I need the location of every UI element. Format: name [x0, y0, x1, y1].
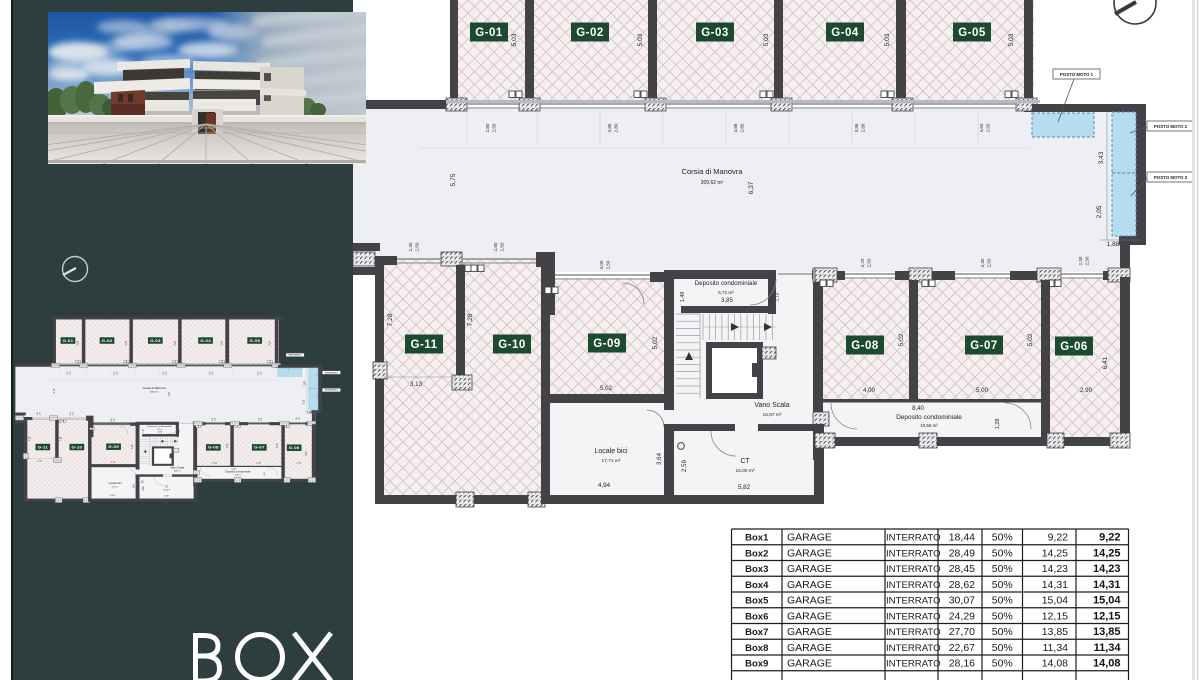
svg-text:GARAGE: GARAGE [787, 610, 832, 622]
svg-text:14,23: 14,23 [1093, 563, 1121, 575]
svg-text:INTERRATO: INTERRATO [886, 643, 941, 654]
svg-text:GARAGE: GARAGE [787, 547, 832, 559]
svg-text:9,22: 9,22 [1099, 532, 1120, 544]
svg-text:14,25: 14,25 [1042, 547, 1068, 559]
svg-text:50%: 50% [992, 532, 1013, 544]
svg-text:Box1: Box1 [745, 533, 769, 544]
svg-text:GARAGE: GARAGE [787, 532, 832, 544]
svg-text:30,07: 30,07 [949, 595, 975, 607]
svg-text:Box7: Box7 [745, 627, 768, 638]
svg-text:INTERRATO: INTERRATO [886, 548, 941, 559]
svg-text:14,08: 14,08 [1042, 658, 1068, 670]
svg-text:INTERRATO: INTERRATO [886, 564, 941, 575]
svg-text:Box4: Box4 [745, 580, 769, 591]
svg-text:Box3: Box3 [745, 564, 768, 575]
svg-text:24,29: 24,29 [949, 610, 975, 622]
svg-text:13,85: 13,85 [1042, 626, 1068, 638]
svg-text:15,04: 15,04 [1093, 595, 1121, 607]
svg-text:28,45: 28,45 [949, 563, 975, 575]
svg-text:INTERRATO: INTERRATO [886, 596, 941, 607]
svg-text:50%: 50% [992, 658, 1013, 670]
svg-text:14,31: 14,31 [1042, 579, 1068, 591]
svg-text:13,85: 13,85 [1093, 626, 1121, 638]
svg-text:GARAGE: GARAGE [787, 595, 832, 607]
svg-text:GARAGE: GARAGE [787, 658, 832, 670]
svg-text:50%: 50% [992, 626, 1013, 638]
svg-text:50%: 50% [992, 579, 1013, 591]
svg-text:28,49: 28,49 [949, 547, 975, 559]
svg-text:Box2: Box2 [745, 548, 768, 559]
svg-text:Box8: Box8 [745, 643, 768, 654]
svg-text:12,15: 12,15 [1042, 610, 1068, 622]
svg-text:50%: 50% [992, 563, 1013, 575]
svg-text:Box6: Box6 [745, 611, 768, 622]
svg-text:28,62: 28,62 [949, 579, 975, 591]
svg-text:INTERRATO: INTERRATO [886, 533, 941, 544]
svg-text:INTERRATO: INTERRATO [886, 627, 941, 638]
svg-text:INTERRATO: INTERRATO [886, 611, 941, 622]
svg-text:14,25: 14,25 [1093, 547, 1121, 559]
svg-text:9,22: 9,22 [1048, 532, 1069, 544]
svg-text:11,34: 11,34 [1043, 642, 1069, 654]
svg-text:INTERRATO: INTERRATO [886, 580, 941, 591]
svg-text:50%: 50% [992, 642, 1013, 654]
svg-text:INTERRATO: INTERRATO [886, 659, 941, 670]
svg-text:Box5: Box5 [745, 596, 769, 607]
svg-text:12,15: 12,15 [1093, 610, 1121, 622]
svg-text:27,70: 27,70 [949, 626, 975, 638]
svg-text:11,34: 11,34 [1094, 642, 1122, 654]
svg-text:GARAGE: GARAGE [787, 563, 832, 575]
svg-text:15,04: 15,04 [1042, 595, 1068, 607]
svg-text:14,08: 14,08 [1093, 658, 1121, 670]
svg-text:50%: 50% [992, 595, 1013, 607]
svg-text:18,44: 18,44 [949, 532, 975, 544]
svg-text:14,23: 14,23 [1042, 563, 1068, 575]
svg-text:50%: 50% [992, 547, 1013, 559]
svg-text:22,67: 22,67 [949, 642, 975, 654]
svg-text:50%: 50% [992, 610, 1013, 622]
svg-text:GARAGE: GARAGE [787, 579, 832, 591]
svg-text:14,31: 14,31 [1093, 579, 1121, 591]
svg-text:Box9: Box9 [745, 659, 768, 670]
svg-text:GARAGE: GARAGE [787, 626, 832, 638]
svg-text:GARAGE: GARAGE [787, 642, 832, 654]
svg-text:28,16: 28,16 [949, 658, 975, 670]
